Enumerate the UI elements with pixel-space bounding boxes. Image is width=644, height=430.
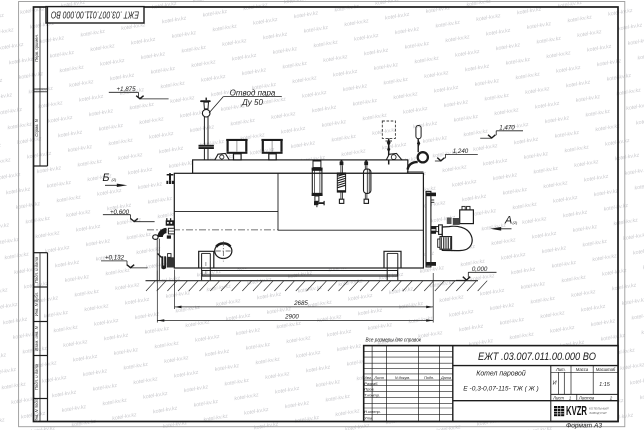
svg-text:Масса: Масса [576, 367, 589, 372]
svg-text:Листов: Листов [578, 396, 595, 401]
svg-text:ЗАВОД РЭР: ЗАВОД РЭР [589, 411, 608, 415]
svg-text:2900: 2900 [284, 314, 299, 321]
svg-text:Лист: Лист [373, 376, 384, 380]
svg-text:А: А [504, 215, 512, 227]
svg-text:Подп. и дата: Подп. и дата [34, 256, 39, 283]
svg-text:0,000: 0,000 [472, 266, 488, 273]
svg-text:Лит.: Лит. [555, 367, 566, 372]
svg-text:2685: 2685 [293, 300, 308, 307]
svg-text:Утв.: Утв. [364, 416, 373, 421]
svg-text:Н.контр.: Н.контр. [364, 409, 380, 414]
svg-text:1:15: 1:15 [599, 382, 611, 388]
svg-text:Разраб.: Разраб. [364, 381, 378, 386]
svg-text:Пров.: Пров. [364, 386, 374, 391]
svg-text:ЕЖТ .03.007.011.00.000 ВО: ЕЖТ .03.007.011.00.000 ВО [478, 351, 596, 363]
svg-text:Подп.: Подп. [424, 376, 434, 380]
svg-text:(2): (2) [112, 177, 118, 182]
svg-text:Перв. примен.: Перв. примен. [34, 34, 39, 62]
svg-text:Т.контр.: Т.контр. [364, 392, 380, 397]
svg-text:Дата: Дата [440, 376, 451, 380]
svg-text:Справ. N: Справ. N [34, 118, 39, 136]
svg-text:N докум.: N докум. [395, 376, 410, 380]
svg-text:Инв. N подл.: Инв. N подл. [34, 398, 39, 422]
svg-text:Взам. инв. N: Взам. инв. N [34, 325, 39, 350]
svg-text:Лист: Лист [552, 396, 564, 401]
svg-text:Подп. и дата: Подп. и дата [34, 363, 39, 390]
svg-text:Котел паровой: Котел паровой [476, 370, 526, 378]
svg-text:Изм.: Изм. [364, 376, 372, 380]
svg-text:Б: Б [102, 172, 109, 184]
svg-text:Масштаб: Масштаб [596, 367, 616, 372]
svg-text:И: И [553, 381, 557, 387]
svg-text:Отвод пара: Отвод пара [230, 88, 276, 97]
svg-text:Ду 50: Ду 50 [241, 98, 263, 107]
svg-text:(2): (2) [513, 220, 519, 225]
svg-text:Е -0,3-0,07-115- ТЖ ( Ж ): Е -0,3-0,07-115- ТЖ ( Ж ) [463, 386, 538, 393]
svg-text:Инв. N дубл.: Инв. N дубл. [34, 292, 39, 316]
svg-text:1,470: 1,470 [499, 124, 515, 131]
svg-text:ЕЖТ .03.007.011.00.000 ВО: ЕЖТ .03.007.011.00.000 ВО [51, 8, 139, 19]
svg-text:KVZR: KVZR [566, 404, 587, 418]
svg-text:Формат А3: Формат А3 [566, 423, 602, 430]
svg-text:1: 1 [569, 396, 571, 401]
svg-text:Все размеры для справок: Все размеры для справок [366, 338, 422, 344]
